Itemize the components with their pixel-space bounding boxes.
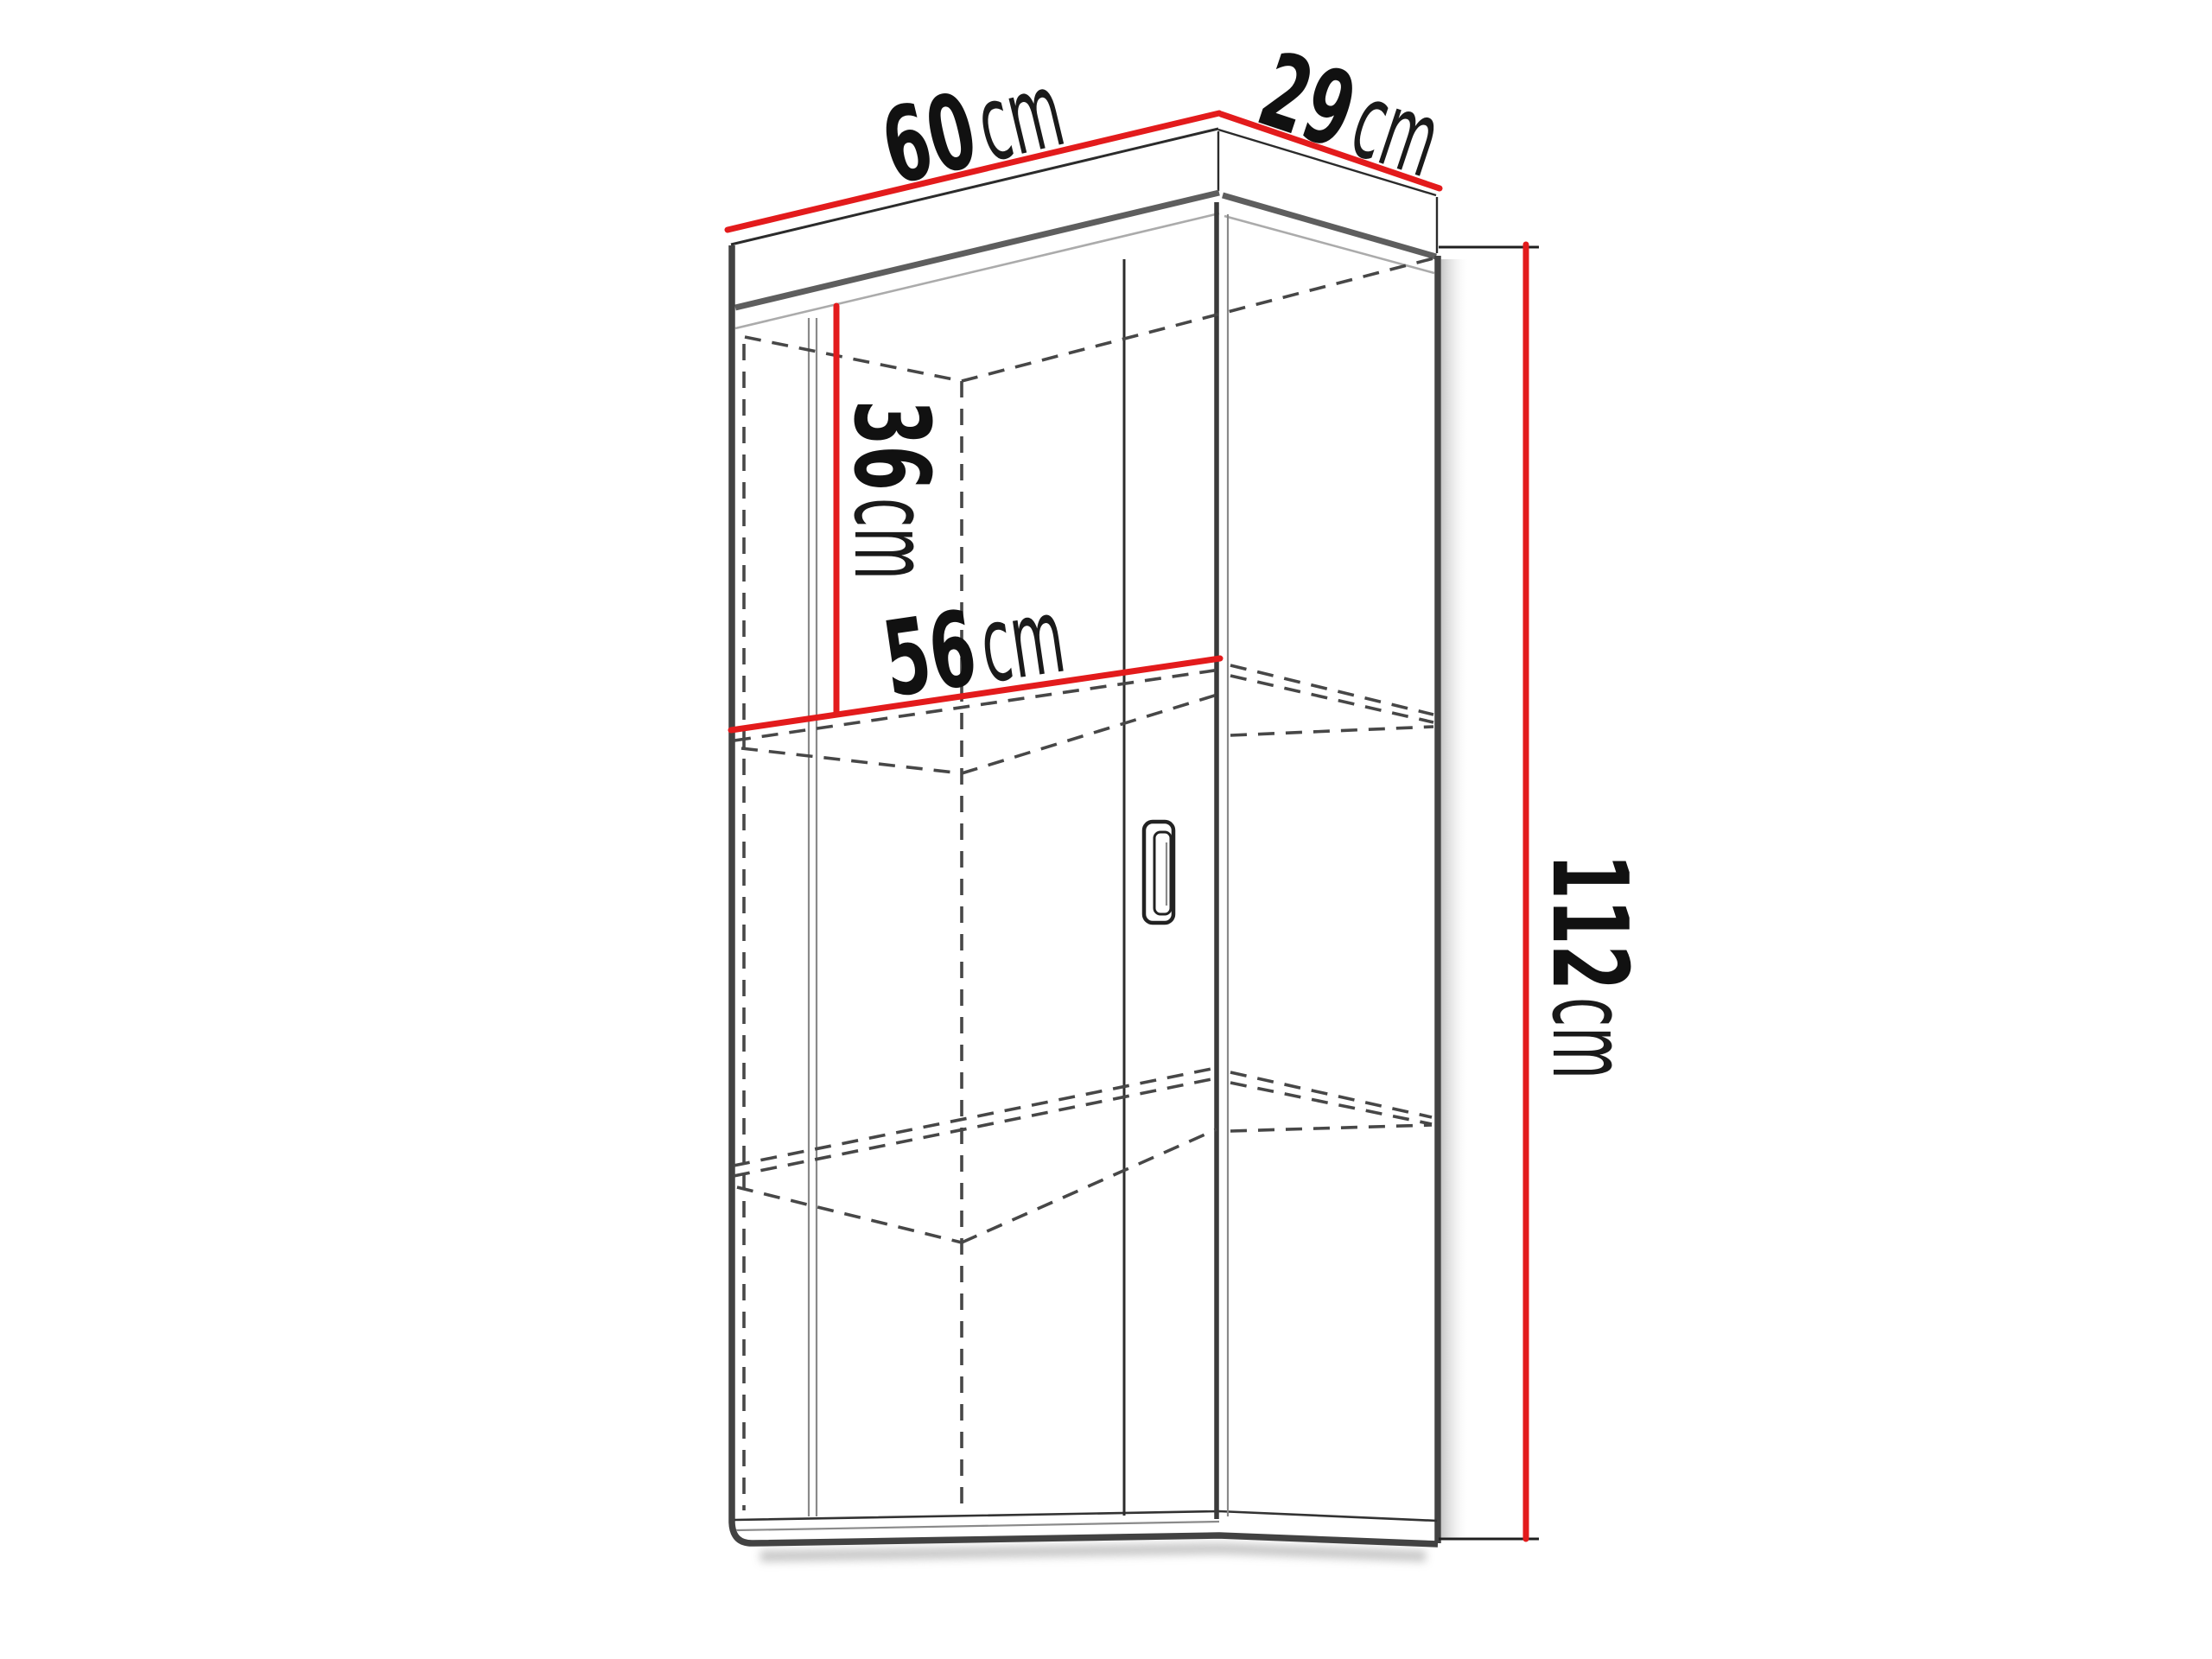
interior-top-left-edge (745, 337, 962, 381)
cabinet-dimension-diagram: 60 cm 29 cm 36 cm 56 cm 112 cm (0, 0, 2212, 1659)
label-height-value: 112 (1529, 854, 1649, 990)
lower-shelf-lines (734, 1067, 1432, 1243)
bottom-band-echo (736, 1522, 1219, 1530)
label-upper-inner-height-value: 36 (830, 400, 950, 491)
label-depth: 29 cm (1245, 30, 1453, 201)
label-upper-inner-height-unit: cm (830, 498, 950, 580)
label-inner-width-unit: cm (973, 576, 1071, 707)
bottom-shadow (760, 1548, 1426, 1556)
crown-front-echo (735, 213, 1219, 328)
bottom-band-top-line (734, 1511, 1437, 1521)
label-height-unit: cm (1529, 997, 1649, 1079)
cabinet-diagram-canvas: 60 cm 29 cm 36 cm 56 cm 112 cm (0, 0, 2212, 1659)
right-side-shadow (1441, 259, 1469, 1540)
dimension-lines (728, 113, 1526, 1539)
cabinet-body (731, 129, 1539, 1556)
label-width-unit: cm (966, 50, 1074, 186)
interior-top-back-edge (962, 258, 1433, 381)
label-height: 112 cm (1529, 854, 1649, 1079)
label-inner-width-value: 56 (876, 589, 983, 721)
crown-side-line (1223, 195, 1436, 257)
door-handle (1144, 822, 1173, 923)
label-width-value: 60 (871, 71, 988, 209)
label-upper-inner-height: 36 cm (830, 400, 950, 580)
label-width: 60 cm (871, 50, 1074, 209)
label-inner-width: 56 cm (876, 576, 1071, 721)
